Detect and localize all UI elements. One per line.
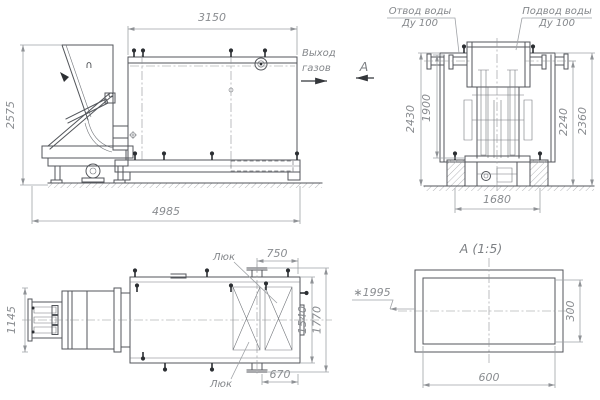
side-view-lifting-eye-icons (132, 48, 299, 160)
detail-view-dim-height: 300 (564, 301, 577, 322)
top-view-dim-feeder-width: 1145 (5, 306, 18, 334)
engineering-drawing-sheet: 3150 2575 4985 Выход газов А ∩ (0, 0, 600, 400)
end-view-dim-outer-left: 2430 (404, 105, 417, 133)
end-view-dim-inner-right: 2240 (557, 108, 570, 136)
side-view-linework (42, 45, 322, 188)
drawing-canvas: 3150 2575 4985 Выход газов А ∩ (0, 0, 600, 400)
detail-view-title: А (1:5) (459, 241, 502, 256)
hatch-label-top: Люк (212, 252, 235, 263)
water-inlet-label-line1: Подвод воды (522, 6, 592, 17)
end-view: Отвод воды Ду 100 Подвод воды Ду 100 243… (387, 6, 595, 213)
end-view-dim-outer-right: 2360 (576, 107, 589, 135)
top-view: Люк Люк 750 1145 1540 1770 670 (5, 247, 332, 390)
hopper-mark: ∩ (85, 60, 92, 71)
top-view-dim-hatch-bottom: 670 (270, 368, 291, 381)
side-view-dimensions (20, 26, 300, 224)
side-view-height-dim: 2575 (4, 101, 17, 129)
end-view-centerlines (424, 38, 571, 192)
top-view-dim-body-width: 1540 (296, 306, 309, 334)
side-view-tank-length-dim: 3150 (198, 11, 226, 24)
detail-view-dim-reference: ∗1995 (353, 286, 390, 299)
detail-view: А (1:5) ∗1995 300 600 (352, 241, 583, 388)
side-view: 3150 2575 4985 Выход газов А ∩ (4, 11, 374, 224)
water-outlet-label-line1: Отвод воды (389, 6, 452, 17)
side-view-overall-length-dim: 4985 (152, 205, 180, 218)
end-view-dim-foundation-span: 1680 (483, 193, 511, 206)
gas-outlet-label-line2: газов (302, 63, 331, 74)
water-outlet-label-line2: Ду 100 (401, 18, 438, 29)
top-view-dim-hatch-top: 750 (267, 247, 288, 260)
detail-view-centerlines (398, 258, 572, 364)
view-a-arrow-label: А (359, 59, 369, 74)
top-view-dim-overall-width: 1770 (311, 306, 324, 334)
water-inlet-label-line2: Ду 100 (538, 18, 575, 29)
hatch-label-bottom: Люк (209, 379, 232, 390)
detail-view-dim-width: 600 (479, 371, 500, 384)
end-view-lifting-eye-icons (453, 44, 542, 160)
side-view-centerlines (130, 55, 295, 167)
end-view-dim-inner-left: 1900 (420, 94, 433, 122)
gas-outlet-label-line1: Выход (302, 48, 336, 59)
